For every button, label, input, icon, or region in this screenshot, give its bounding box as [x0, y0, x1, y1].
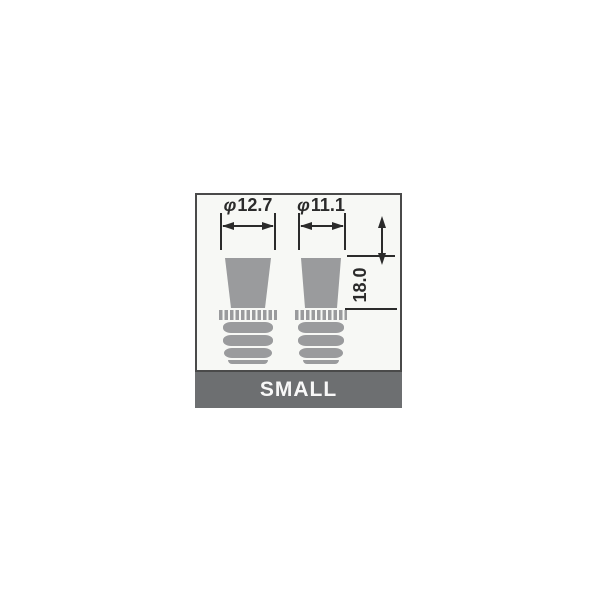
- rib-cap: [303, 360, 339, 364]
- size-label-bar: SMALL: [195, 372, 402, 408]
- size-label: SMALL: [260, 378, 337, 402]
- arrowhead-right-icon: [262, 222, 274, 230]
- rib: [298, 322, 344, 333]
- diameter-value-right: 11.1: [311, 195, 345, 215]
- extension-line-top: [347, 255, 395, 257]
- extension-line-right: [274, 213, 276, 250]
- rib-section: [223, 322, 273, 364]
- rib: [298, 335, 344, 346]
- arrowhead-left-icon: [300, 222, 312, 230]
- rib: [299, 348, 343, 358]
- knurl-band: [295, 310, 347, 320]
- nozzle-tip: [225, 258, 271, 308]
- arrowhead-right-icon: [332, 222, 344, 230]
- extension-line-left: [220, 213, 222, 250]
- rib-cap: [228, 360, 268, 364]
- phi-symbol: φ: [297, 195, 310, 215]
- arrowhead-left-icon: [222, 222, 234, 230]
- knurl-band: [219, 310, 277, 320]
- extension-line-right: [344, 213, 346, 250]
- rib: [223, 335, 273, 346]
- product-size-card: φ12.7 φ11.1: [195, 193, 402, 408]
- extension-line-left: [298, 213, 300, 250]
- diagram-area: φ12.7 φ11.1: [195, 193, 402, 372]
- diameter-label-left: φ12.7: [208, 196, 288, 214]
- diameter-value-left: 12.7: [237, 195, 272, 215]
- page: φ12.7 φ11.1: [0, 0, 600, 600]
- diameter-label-right: φ11.1: [281, 196, 361, 214]
- nozzle-tip: [301, 258, 341, 308]
- extension-line-bottom: [345, 308, 397, 310]
- rib: [223, 322, 273, 333]
- height-label: 18.0: [350, 263, 370, 307]
- rib: [224, 348, 272, 358]
- arrowhead-down-icon: [378, 253, 386, 265]
- phi-symbol: φ: [224, 195, 237, 215]
- rib-section: [298, 322, 344, 364]
- arrowhead-up-icon: [378, 216, 386, 228]
